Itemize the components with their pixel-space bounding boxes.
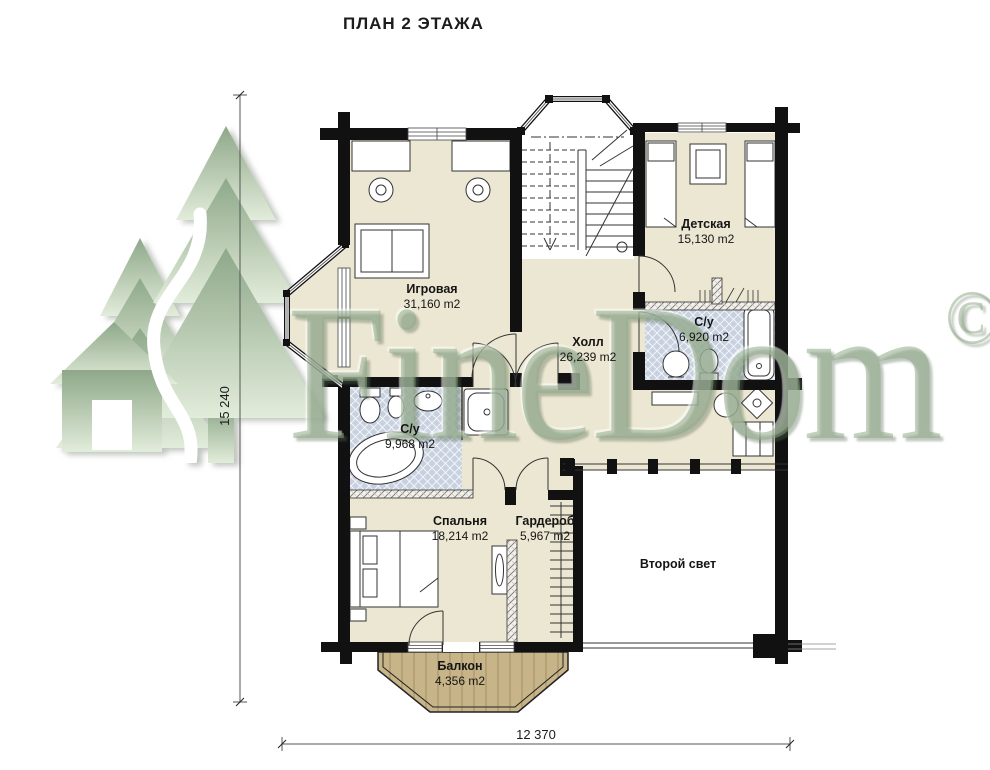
room-label-playroom: Игровая 31,160 m2 [404,281,461,313]
washbasin-icon [414,391,442,411]
room-area: 9,968 m2 [385,437,435,453]
window-icon [408,128,466,140]
room-name: С/у [385,421,435,437]
room-label-bedroom: Спальня 18,214 m2 [432,513,489,545]
room-area: 31,160 m2 [404,297,461,313]
dresser-icon [733,422,773,456]
room-label-bathroom-large: С/у 9,968 m2 [385,421,435,453]
bathtub-icon [744,306,774,380]
double-bed-icon [350,517,438,621]
room-label-hall: Холл 26,239 m2 [560,334,617,366]
room-name: Детская [678,216,735,232]
room-name: Спальня [432,513,489,529]
mirror-panel-icon [492,546,507,594]
room-area: 6,920 m2 [679,330,729,346]
room-name: Балкон [435,658,485,674]
floor-plan-page: ПЛАН 2 ЭТАЖА [0,0,990,770]
bidet-icon [388,388,404,418]
window-icon [408,642,442,652]
kids-table-icon [690,144,726,184]
room-label-wardrobe: Гардероб 5,967 m2 [515,513,574,545]
room-area: 18,214 m2 [432,529,489,545]
room-area: 4,356 m2 [435,674,485,690]
room-area: 5,967 m2 [515,529,574,545]
room-label-void: Второй свет [640,556,716,572]
window-icon [678,123,726,132]
balcony-door-gap [443,642,479,652]
console-table-icon [652,392,698,405]
room-name: Второй свет [640,556,716,572]
window-icon [480,642,514,652]
floor-stairwell [520,131,634,259]
room-label-balcony: Балкон 4,356 m2 [435,658,485,690]
toilet-icon [360,388,380,423]
room-name: Игровая [404,281,461,297]
room-area: 26,239 m2 [560,350,617,366]
room-label-children: Детская 15,130 m2 [678,216,735,248]
toilet-icon [700,349,718,381]
room-label-bathroom-small: С/у 6,920 m2 [679,314,729,346]
room-name: Холл [560,334,617,350]
round-table-icon [714,393,738,417]
page-title: ПЛАН 2 ЭТАЖА [343,14,484,34]
window-icon [338,318,350,367]
room-area: 15,130 m2 [678,232,735,248]
cabinet-icon [355,224,429,278]
room-name: Гардероб [515,513,574,529]
shower-cabin-icon [464,389,508,435]
floor-plan-drawing [0,0,990,770]
room-name: С/у [679,314,729,330]
window-icon [338,268,350,317]
